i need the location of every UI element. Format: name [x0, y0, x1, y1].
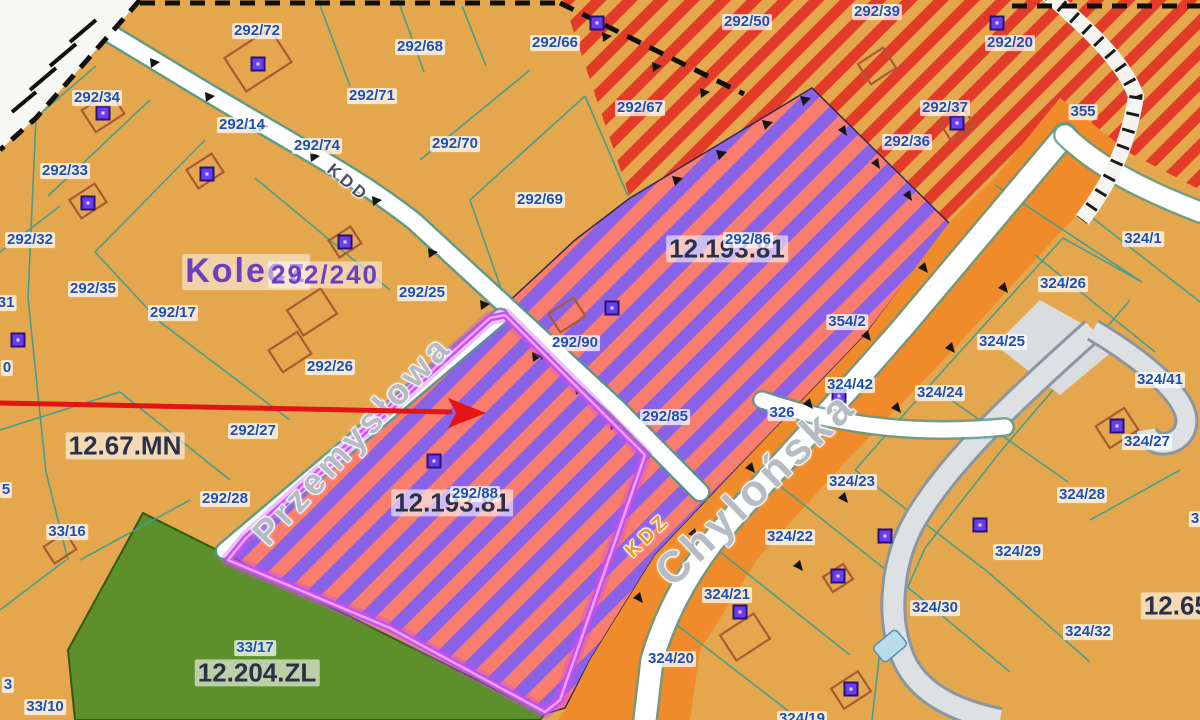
red-arrow-icon [0, 398, 486, 428]
annotation-arrow-layer [0, 0, 1200, 720]
map-canvas[interactable]: 12.67.MN12.193.8112.193.8112.204.ZL12.65… [0, 0, 1200, 720]
